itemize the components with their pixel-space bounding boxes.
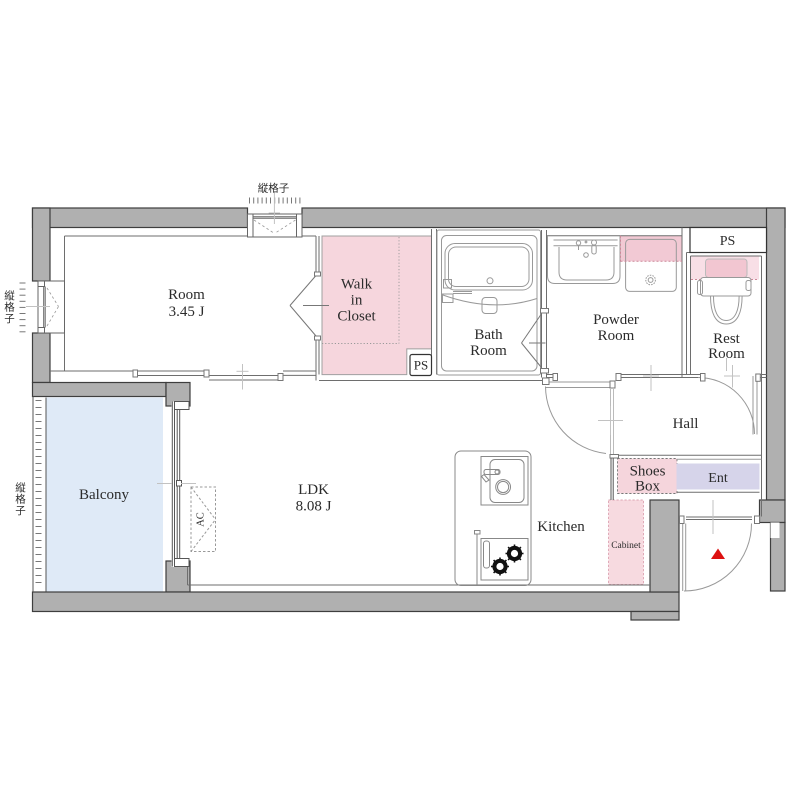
svg-text:Hall: Hall [673,416,699,432]
svg-text:Walk: Walk [341,277,373,293]
svg-text:PS: PS [720,234,736,249]
svg-text:Box: Box [635,479,661,495]
svg-text:3.45 J: 3.45 J [169,304,205,320]
svg-text:8.08 J: 8.08 J [296,499,332,515]
svg-text:格: 格 [15,493,26,506]
svg-text:Kitchen: Kitchen [537,519,585,535]
svg-text:Cabinet: Cabinet [611,541,641,551]
svg-text:Shoes: Shoes [630,464,666,480]
svg-text:Room: Room [598,328,635,344]
svg-text:Closet: Closet [337,309,376,325]
svg-text:縦: 縦 [4,289,15,302]
svg-text:Room: Room [470,343,507,359]
svg-text:子: 子 [4,313,15,325]
svg-text:AC: AC [196,512,207,527]
svg-text:Balcony: Balcony [79,487,129,503]
svg-text:Ent: Ent [708,471,728,486]
svg-text:in: in [351,293,363,309]
svg-text:Rest: Rest [713,331,741,347]
svg-text:子: 子 [15,505,26,517]
svg-text:縦格子: 縦格子 [258,182,290,195]
svg-text:Room: Room [708,346,745,362]
svg-text:格: 格 [4,301,15,314]
svg-text:LDK: LDK [298,482,329,498]
svg-text:Room: Room [168,287,205,303]
svg-text:PS: PS [414,358,428,373]
svg-text:縦: 縦 [15,481,26,494]
svg-text:Bath: Bath [474,327,503,343]
svg-text:Powder: Powder [593,312,639,328]
